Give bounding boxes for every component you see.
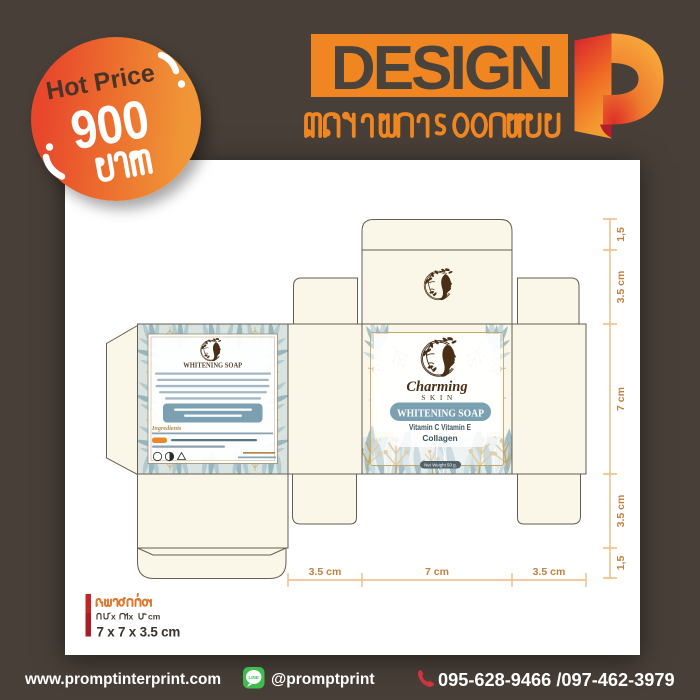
svg-text:Net Weight 50 g.: Net Weight 50 g. [424,463,457,468]
svg-text:3.5 cm: 3.5 cm [533,566,566,578]
svg-text:7 x 7 x 3.5 cm: 7 x 7 x 3.5 cm [97,625,181,640]
svg-text:x: x [129,612,134,622]
svg-text:7 cm: 7 cm [425,566,449,578]
svg-text:cm: cm [148,612,161,622]
svg-text:3.5 cm: 3.5 cm [309,566,342,578]
svg-text:Collagen: Collagen [422,433,457,443]
svg-text:WHITENING SOAP: WHITENING SOAP [183,361,242,370]
svg-text:1,5: 1,5 [615,556,627,571]
svg-text:3.5 cm: 3.5 cm [615,271,627,304]
svg-text:1,5: 1,5 [615,227,627,242]
svg-text:LINE: LINE [248,675,258,680]
svg-text:7 cm: 7 cm [615,387,627,411]
svg-text:Ingredients: Ingredients [151,425,182,432]
svg-text:3.5 cm: 3.5 cm [615,495,627,528]
svg-text:WHITENING SOAP: WHITENING SOAP [397,409,484,420]
svg-text:SKIN: SKIN [421,393,457,402]
svg-text:Vitamin C Vitamin E: Vitamin C Vitamin E [409,422,471,432]
svg-text:x: x [111,612,116,622]
